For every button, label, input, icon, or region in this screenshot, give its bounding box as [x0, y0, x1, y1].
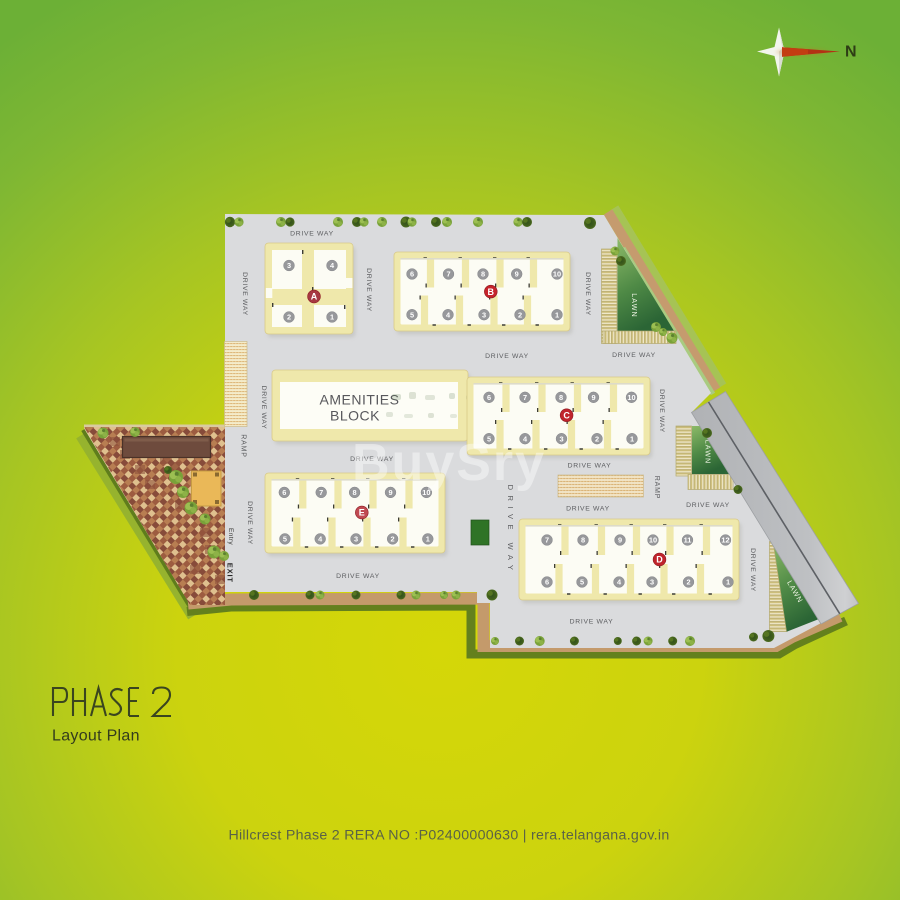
svg-text:DRIVE WAY: DRIVE WAY [241, 272, 248, 316]
svg-text:DRIVE WAY: DRIVE WAY [658, 389, 665, 433]
svg-text:12: 12 [721, 536, 729, 545]
svg-text:DRIVE WAY: DRIVE WAY [584, 272, 591, 316]
svg-text:7: 7 [319, 488, 323, 497]
svg-text:Layout Plan: Layout Plan [52, 728, 140, 745]
svg-text:DRIVE WAY: DRIVE WAY [566, 506, 610, 513]
svg-text:7: 7 [523, 393, 527, 402]
svg-text:10: 10 [649, 536, 657, 545]
svg-text:3: 3 [650, 578, 654, 587]
svg-text:RAMP: RAMP [239, 434, 246, 457]
svg-text:5: 5 [580, 578, 584, 587]
svg-text:6: 6 [545, 578, 549, 587]
svg-text:DRIVE WAY: DRIVE WAY [365, 268, 372, 312]
svg-text:DRIVE WAY: DRIVE WAY [612, 352, 656, 359]
svg-text:2: 2 [287, 313, 291, 322]
svg-text:2: 2 [686, 578, 690, 587]
svg-text:C: C [563, 410, 570, 420]
svg-text:9: 9 [515, 270, 519, 279]
svg-text:BLOCK: BLOCK [330, 408, 380, 424]
svg-text:5: 5 [283, 535, 287, 544]
svg-text:11: 11 [684, 536, 692, 545]
svg-text:DRIVE WAY: DRIVE WAY [290, 231, 334, 238]
svg-text:2: 2 [518, 310, 522, 319]
svg-text:DRIVE WAY: DRIVE WAY [570, 619, 614, 626]
svg-text:1: 1 [630, 434, 634, 443]
svg-text:1: 1 [330, 313, 334, 322]
svg-text:DRIVE WAY: DRIVE WAY [568, 463, 612, 470]
svg-text:1: 1 [426, 535, 430, 544]
svg-text:3: 3 [559, 434, 563, 443]
svg-text:DRIVE WAY: DRIVE WAY [506, 485, 515, 576]
svg-text:RAMP: RAMP [653, 476, 660, 499]
svg-text:1: 1 [555, 310, 559, 319]
svg-text:6: 6 [487, 393, 491, 402]
svg-text:3: 3 [287, 261, 291, 270]
svg-text:1: 1 [726, 578, 730, 587]
svg-text:Entry: Entry [227, 528, 234, 545]
svg-text:BuySry: BuySry [352, 434, 546, 492]
svg-text:DRIVE WAY: DRIVE WAY [749, 548, 756, 592]
svg-text:DRIVE WAY: DRIVE WAY [246, 501, 253, 545]
svg-text:DRIVE WAY: DRIVE WAY [260, 386, 267, 430]
svg-text:D: D [656, 555, 663, 565]
svg-text:E: E [359, 508, 365, 518]
svg-text:8: 8 [559, 393, 563, 402]
svg-text:7: 7 [545, 536, 549, 545]
svg-text:DRIVE WAY: DRIVE WAY [485, 353, 529, 360]
svg-text:6: 6 [282, 488, 286, 497]
svg-text:A: A [311, 292, 318, 302]
svg-text:3: 3 [354, 535, 358, 544]
svg-text:6: 6 [410, 270, 414, 279]
svg-text:9: 9 [591, 393, 595, 402]
svg-text:9: 9 [618, 536, 622, 545]
svg-text:B: B [488, 287, 495, 297]
svg-text:AMENITIES: AMENITIES [320, 392, 400, 408]
svg-text:2: 2 [595, 434, 599, 443]
svg-text:10: 10 [553, 270, 561, 279]
svg-text:EXIT: EXIT [226, 563, 235, 583]
svg-text:LAWN: LAWN [630, 293, 639, 318]
svg-text:DRIVE WAY: DRIVE WAY [336, 573, 380, 580]
svg-text:2: 2 [391, 535, 395, 544]
svg-text:Hillcrest Phase 2 RERA NO :P02: Hillcrest Phase 2 RERA NO :P02400000630 … [228, 828, 669, 844]
svg-text:3: 3 [482, 310, 486, 319]
svg-text:N: N [845, 44, 857, 61]
svg-text:8: 8 [581, 536, 585, 545]
svg-text:8: 8 [481, 270, 485, 279]
svg-text:5: 5 [410, 310, 414, 319]
svg-text:DRIVE WAY: DRIVE WAY [686, 502, 730, 509]
svg-text:7: 7 [446, 270, 450, 279]
svg-text:10: 10 [627, 393, 635, 402]
